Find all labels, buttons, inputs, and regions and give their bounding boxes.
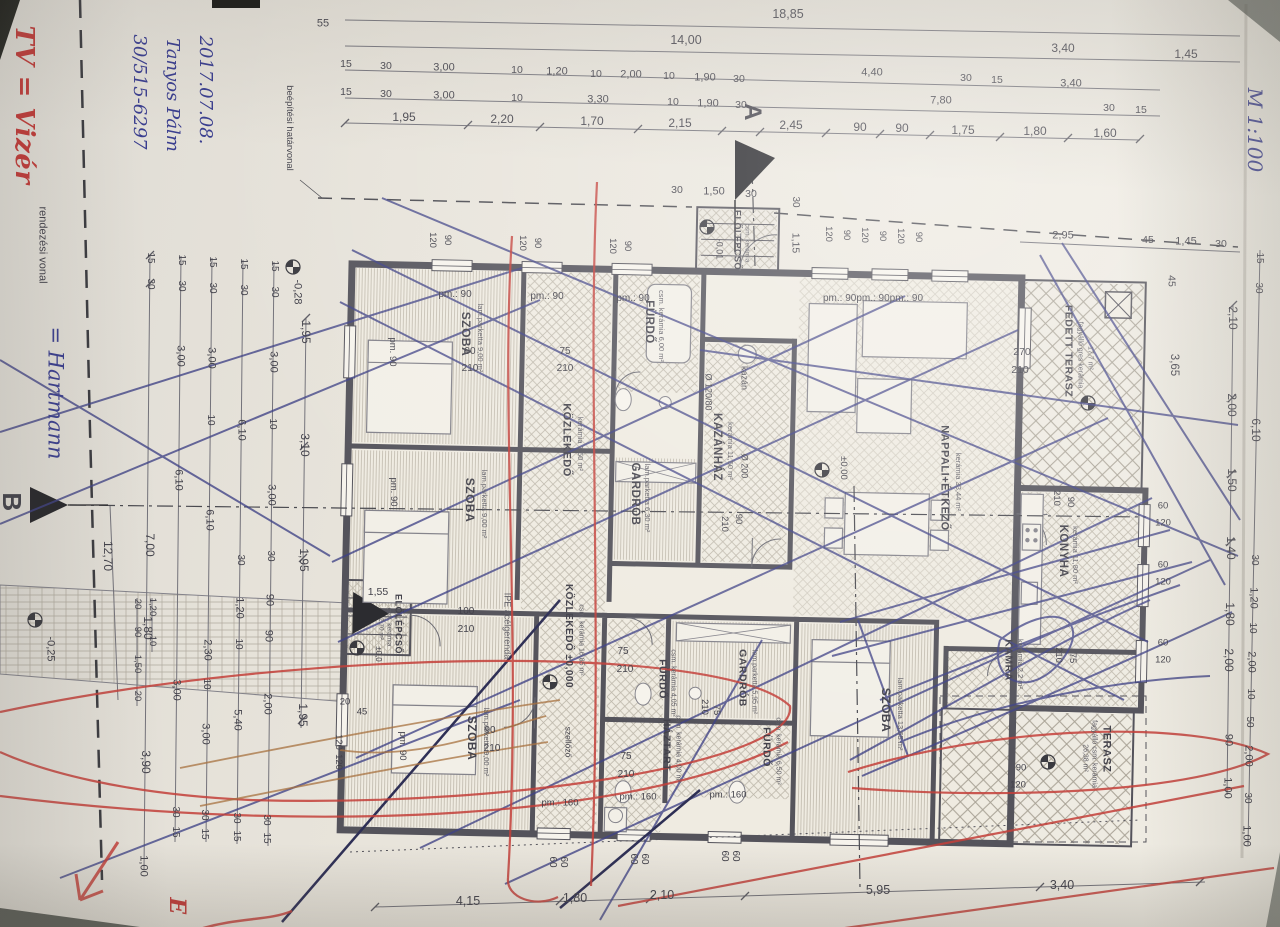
dim-label: 30 (231, 812, 241, 823)
room-gardrob-2: GARDRÓB (737, 649, 748, 707)
dim-label: 55 (317, 19, 329, 30)
dim-label: 1,80 (1023, 125, 1046, 137)
dim-label: 1,15 (790, 233, 801, 253)
dim-label: 120 (427, 232, 437, 248)
dim-label: 120 (859, 227, 869, 243)
room-kamra: KAMRA (1003, 639, 1014, 681)
dim-label: pm. 90 (388, 477, 398, 506)
dim-label: kerámia 33,44 m² (954, 453, 962, 511)
dim-label: 5,95 (866, 884, 890, 897)
dim-label: 1,95 (298, 548, 310, 571)
dim-label: pm.: 90pm.: 90pm.: 90 (823, 294, 923, 304)
dim-label: 75 (620, 752, 631, 762)
dim-label: 4,15 (456, 895, 480, 908)
dim-label: 3,00 (175, 345, 186, 366)
room-szoba-3: SZOBA (466, 716, 478, 761)
dim-label: 15 (231, 830, 241, 841)
dim-label: 1,70 (580, 115, 603, 127)
dim-label: szellőző (564, 727, 573, 758)
dim-label: 60 (719, 850, 729, 861)
dim-label: 270 (1013, 347, 1031, 358)
boiler-label: kazán (740, 366, 749, 390)
dim-label: csm. kerámia 6,50 m² (775, 717, 782, 784)
room-kazanhaz: KAZÁNHÁZ (710, 413, 722, 481)
dim-label: 90 (877, 231, 887, 242)
dim-label: 14,00 (670, 34, 701, 47)
dim-label: 6,10 (236, 419, 247, 440)
dim-label: 90 (733, 514, 743, 525)
dim-label: 18,85 (772, 8, 803, 21)
dim-label: 5,40 (232, 709, 243, 730)
room-terasz: TERASZ (1101, 726, 1112, 773)
dim-label: 1,45 (1175, 237, 1196, 248)
label-regulation-line: rendezési vonal (37, 206, 48, 283)
dim-label: 45 (357, 707, 368, 717)
dim-label: 15 (238, 258, 248, 269)
dim-label: 6,10 (1250, 418, 1262, 441)
dim-label: kerámia 2,2 m² (1016, 639, 1024, 689)
dim-label: 30 (380, 89, 392, 100)
dim-label: 2,95 (1052, 231, 1073, 242)
dim-label: 1,60 (1093, 127, 1116, 139)
dim-label: 30 (170, 806, 180, 817)
dim-label: 26,38 m² (1082, 744, 1089, 772)
dim-label: 20 (340, 697, 351, 707)
dim-label: 1,95 (300, 320, 312, 343)
dim-label: 15 (1254, 252, 1264, 263)
dim-label: 15 (261, 832, 271, 843)
dim-label: 210 (699, 699, 709, 715)
dim-label: 20 (132, 599, 142, 610)
note-phone: 30/515-6297 (130, 34, 148, 149)
dim-label: 1,95 (297, 703, 309, 726)
dim-label: 7,00 (144, 533, 156, 556)
dim-label: 10 (1245, 688, 1255, 699)
dim-label: 60 (1158, 560, 1169, 570)
dim-label: 120 (333, 754, 343, 770)
photo-background: 18,855514,003,401,4515303,00101,20102,00… (0, 0, 1280, 927)
dim-label: kerámia 11,50 m² (726, 422, 734, 480)
room-szoba-4: SZOBA (880, 688, 892, 733)
dim-label: 15 (340, 87, 352, 98)
dim-label: 1,75 (951, 124, 974, 136)
dim-label: 4,40 (861, 68, 882, 79)
dim-label: csm. kerámia 4,05 m² (670, 649, 677, 716)
dim-label: 2,00 (1246, 651, 1257, 672)
dim-label: 2,00 (620, 70, 641, 81)
dim-label: 2,20 (490, 113, 513, 125)
dim-label: 75 (559, 347, 570, 357)
dim-label: 2,70 m² (377, 618, 384, 640)
dim-label: 75 (711, 705, 721, 716)
dim-label: 1,55 (368, 587, 388, 598)
dim-label: 15 (1135, 105, 1147, 116)
dim-label: 10 (233, 638, 243, 649)
dim-label: Ø 200 (740, 454, 749, 479)
dim-label: 12,70 (102, 541, 114, 571)
dim-label: 90 (1016, 763, 1027, 773)
dim-label: 2,45 (779, 119, 802, 131)
dim-label: 120 (1155, 655, 1171, 665)
dim-label: 30 (745, 189, 757, 200)
dim-label: 120 (607, 238, 617, 254)
scale-note: M 1:100 (1245, 88, 1265, 172)
dim-label: 3,10 (299, 433, 311, 456)
dim-label: 45 (1142, 235, 1154, 246)
dim-label: csm. kerámia (385, 608, 392, 647)
dim-label: Ø 120/80 (704, 373, 713, 410)
dim-label: 30 (790, 196, 800, 207)
dim-label: pm.: 160 (710, 790, 747, 800)
dim-label: 90 (264, 594, 275, 606)
dim-label: 45 (1166, 275, 1177, 287)
dim-label: 120 (333, 734, 343, 750)
dim-label: 1,90 (694, 73, 715, 84)
dim-label: csm. kerámia 6,00 m² (657, 290, 665, 362)
room-furdo-3: FÜRDŐ (761, 727, 772, 767)
dim-label: 1,20 (546, 67, 567, 78)
dim-label: fagyálló gres kerámia (1077, 322, 1084, 389)
dim-label: 2,10 (1227, 306, 1239, 329)
dim-label: 90 (1065, 497, 1075, 508)
dim-label: 210 (1011, 365, 1029, 376)
dim-label: pm.: 160 (620, 792, 657, 802)
dim-label: 120 (1155, 577, 1171, 587)
room-konyha: KONYHA (1056, 525, 1068, 578)
dim-label: 1,80 (1224, 602, 1236, 625)
dim-label: 1,20 (147, 598, 157, 617)
dim-label: 90 (532, 238, 542, 249)
room-kozlekedo-1: KÖZLEKEDŐ (561, 403, 572, 477)
dim-label: 90 (622, 241, 632, 252)
dim-label: 30 (176, 280, 186, 291)
dim-label: 10 (663, 71, 675, 82)
annotation-layer: 18,855514,003,401,4515303,00101,20102,00… (0, 0, 1280, 927)
dim-label: 210 (557, 364, 574, 374)
dim-label: 120 (1155, 518, 1171, 528)
dim-label: lam.parketta 6,30 m² (643, 464, 651, 533)
room-fedett-terasz: FEDETT TERASZ (1063, 305, 1074, 397)
dim-label: kerámia 11,80 m² (1071, 526, 1079, 584)
room-furdo-1: FÜRDŐ (642, 300, 654, 343)
room-elolepcso-top: ELŐLÉPCSŐ (733, 210, 742, 270)
dim-label: 1,80 (563, 892, 587, 905)
dim-label: 3,00 (266, 484, 277, 505)
dim-label: 60 (558, 856, 568, 867)
dim-label: -0,28 (292, 279, 303, 304)
dim-label: 10 (267, 418, 277, 429)
dim-label: 3,00 (268, 351, 279, 372)
dim-label: 1,45 (1174, 48, 1197, 60)
dim-label: 1,20 (234, 597, 245, 618)
note-date: 2017.07.08. (196, 36, 214, 145)
dim-label: 90 (132, 627, 142, 638)
dim-label: 10 (201, 678, 211, 689)
dim-label: 2,00 (1226, 393, 1238, 416)
label-building-line: beépítési határvonal (284, 85, 294, 171)
dim-label: pm. 90 (397, 731, 407, 760)
dim-label: 210 (458, 625, 475, 635)
dim-label: pm.: 90 (438, 290, 471, 300)
dim-label: 120 (823, 226, 833, 242)
dim-label: 75 (1067, 653, 1077, 664)
dim-label: 30 (380, 61, 392, 72)
dim-label: 210 (1053, 647, 1063, 663)
room-gardrob-1: GARDRÓB (628, 463, 640, 526)
dim-label: 30 (269, 286, 279, 297)
note-hartmann: = Hartmann (45, 326, 66, 459)
section-marker-b: B (0, 492, 25, 511)
dim-label: 210 (617, 665, 634, 675)
dim-label: 3,40 (1050, 879, 1074, 892)
steel-beam-label: IPE acélgerenda (503, 593, 512, 660)
note-red-e: E (166, 897, 188, 914)
dim-label: 3,30 (587, 95, 608, 106)
section-marker-a: A (740, 103, 764, 121)
dim-label: 7,80 (930, 96, 951, 107)
dim-label: 75 (617, 647, 628, 657)
dim-label: 90 (442, 235, 452, 246)
dim-label: 1,50 (1226, 468, 1238, 491)
dim-label: 1,40 (1225, 536, 1237, 559)
dim-label: 3,00 (433, 91, 454, 102)
dim-label: 30 (1215, 239, 1227, 250)
dim-label: 10 (511, 65, 523, 76)
dim-label: 90 (1223, 734, 1234, 746)
dim-label: pm.: 160 (542, 798, 579, 808)
room-elolepcso-bottom: ELŐLÉPCSŐ (394, 594, 403, 654)
dim-label: pm. 90 (387, 337, 397, 366)
dim-label: kerámia 7,50 m² (576, 417, 584, 471)
dim-label: 15 (170, 826, 180, 837)
dim-label: lam.parketta 9,00 m² (476, 304, 484, 373)
dim-label: 30 (1103, 103, 1115, 114)
room-haztart: HÁZTART (661, 719, 672, 771)
dim-label: 15 (199, 828, 209, 839)
dim-label: 10 (1247, 622, 1257, 633)
room-kozlekedo-2: KÖZLEKEDŐ ±0,000 (563, 584, 573, 688)
dim-label: 10 (147, 636, 157, 647)
dim-label: 30 (733, 74, 745, 85)
dim-label: 120 (517, 235, 527, 251)
dim-label: 15 (991, 75, 1003, 86)
dim-label: 1,00 (138, 855, 149, 876)
dim-label: 15 (176, 254, 186, 265)
dim-label: 15 (207, 256, 217, 267)
dim-label: 30 (261, 814, 271, 825)
dim-label: 30 (238, 284, 248, 295)
dim-label: 6,10 (204, 509, 215, 530)
dim-label: 10 (205, 414, 215, 425)
room-szoba-2: SZOBA (464, 478, 476, 523)
dim-label: 100 (458, 607, 475, 617)
dim-label: 210 (618, 770, 635, 780)
dim-label: 30 (145, 278, 155, 289)
dim-label: lam.parketta 9,00 m² (482, 708, 490, 777)
dim-label: 120 (895, 228, 905, 244)
dim-label: 2,00 (262, 693, 273, 714)
dim-label: csm. kerámia (743, 224, 750, 263)
dim-label: 60 (547, 856, 557, 867)
dim-label: 90 (841, 230, 851, 241)
dim-label: 90 (263, 630, 274, 642)
dim-label: 30 (235, 554, 245, 565)
dim-label: 15 (145, 252, 155, 263)
dim-label: 210 (719, 516, 729, 532)
dim-label: 1,20 (1248, 587, 1259, 608)
dim-label: 30 (1253, 282, 1263, 293)
dim-label: 10 (590, 69, 602, 80)
dim-label: 1,00 (1222, 777, 1233, 798)
dim-label: 3,00 (171, 679, 182, 700)
dim-label: 60 (1158, 501, 1169, 511)
dim-label: 30 (671, 185, 683, 196)
dim-label: -0,01 (715, 239, 724, 260)
dim-label: 1,50 (703, 187, 724, 198)
dim-label: 3,40 (1051, 42, 1074, 54)
dim-label: 30 (1249, 554, 1259, 565)
dim-label: 3,00 (433, 63, 454, 74)
tape-mark (212, 0, 260, 8)
dim-label: 30 (265, 550, 275, 561)
dim-label: 60 (628, 853, 638, 864)
dim-label: 2,30 (202, 639, 213, 660)
dim-label: 10 (667, 97, 679, 108)
dim-label: 1,50 (132, 655, 142, 674)
dim-label: 10 (511, 93, 523, 104)
dim-label: 210 (1051, 490, 1061, 506)
dim-label: 2,00 (1223, 648, 1235, 671)
dim-label: 90 (895, 122, 908, 134)
dim-label: 6,10 (173, 469, 184, 490)
dim-label: 17,7 m² (1087, 346, 1094, 370)
dim-label: csm. kerámia 16,85 m² (578, 604, 585, 675)
dim-label: ±0,00 (838, 456, 848, 480)
dim-label: 15 (269, 260, 279, 271)
dim-label: ±0,0 (374, 646, 382, 662)
note-name: Tanyos Pálm (163, 38, 181, 152)
dim-label: 90 (853, 121, 866, 133)
dim-label: 30 (1242, 792, 1252, 803)
dim-label: 2,15 (668, 117, 691, 129)
dim-label: 2,00 (1243, 745, 1254, 766)
dim-label: 50 (1244, 716, 1254, 727)
dim-label: 3,00 (200, 723, 211, 744)
dim-label: pm.: 90 (530, 292, 563, 302)
dim-label: 30 (199, 809, 209, 820)
dim-label: 3,40 (1060, 79, 1081, 90)
dim-label: 15 (340, 59, 352, 70)
dim-label: 3,90 (140, 750, 152, 773)
dim-label: -0,25 (45, 636, 56, 661)
dim-label: 1,95 (392, 111, 415, 123)
dim-label: 1,90 (697, 99, 718, 110)
dim-label: 60 (1158, 638, 1169, 648)
dim-label: 3,00 (206, 347, 217, 368)
dim-label: 3,65 (1167, 354, 1179, 376)
dim-label: 2,10 (650, 889, 674, 902)
dim-label: 1,00 (1241, 825, 1252, 846)
dim-label: 30 (960, 73, 972, 84)
dim-label: 60 (639, 853, 649, 864)
dim-label: lam.parketta 13,65 m² (896, 678, 904, 751)
dim-label: lam.parketta 5,95 m² (751, 650, 758, 714)
dim-label: csm. kerámia 4,00 m² (675, 715, 682, 782)
room-nappali: NAPPALI+ÉTKEZŐ (939, 425, 950, 531)
room-szoba-1: SZOBA (460, 312, 472, 357)
dim-label: 60 (730, 850, 740, 861)
dim-label: fagyálló csm. kerámia (1091, 720, 1098, 788)
dim-label: 120 (1010, 780, 1026, 790)
dim-label: lam.parketta 9,00 m² (480, 470, 488, 539)
dim-label: 20 (132, 691, 142, 702)
dim-label: 90 (913, 232, 923, 243)
note-red-tv-vizer: TV = Vizér (11, 25, 37, 184)
dim-label: 30 (207, 282, 217, 293)
room-furdo-2: FÜRDŐ (657, 659, 668, 699)
